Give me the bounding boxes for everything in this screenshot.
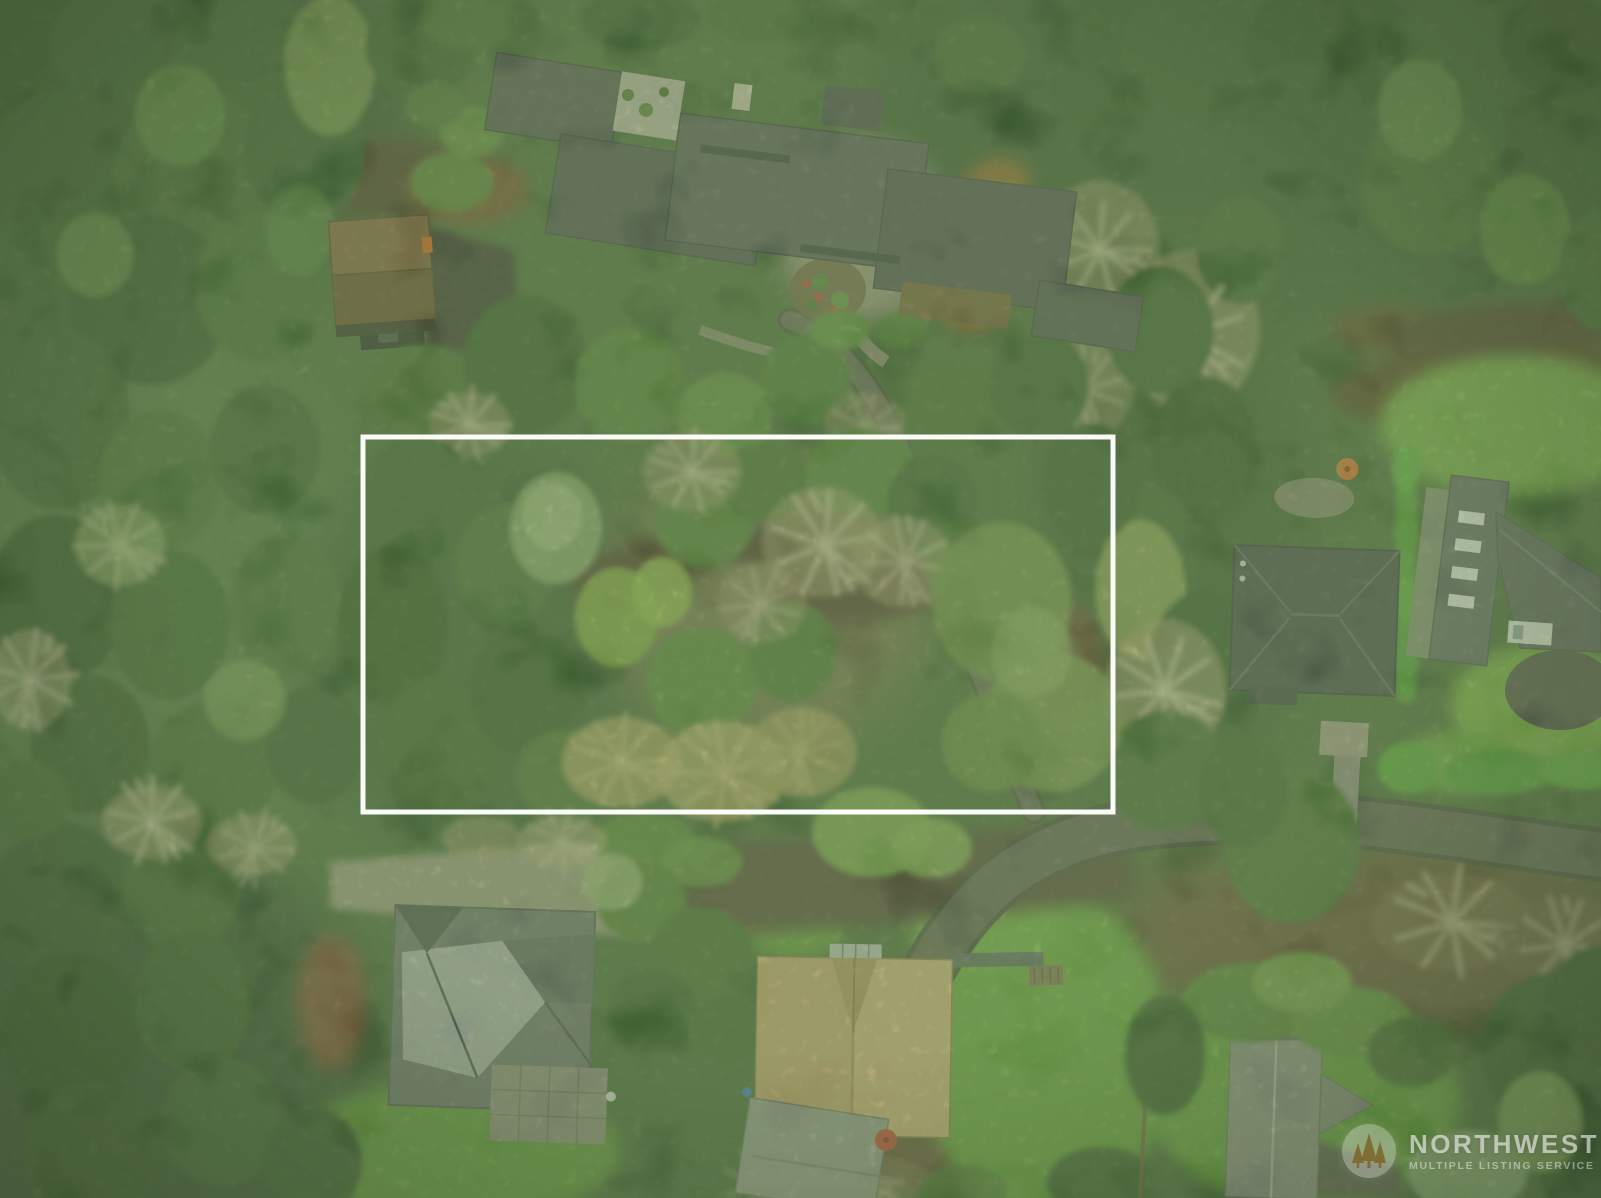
film-grain xyxy=(0,0,1601,1198)
aerial-photo-scene xyxy=(0,0,1601,1198)
aerial-photo: NORTHWEST MULTIPLE LISTING SERVICE xyxy=(0,0,1601,1198)
